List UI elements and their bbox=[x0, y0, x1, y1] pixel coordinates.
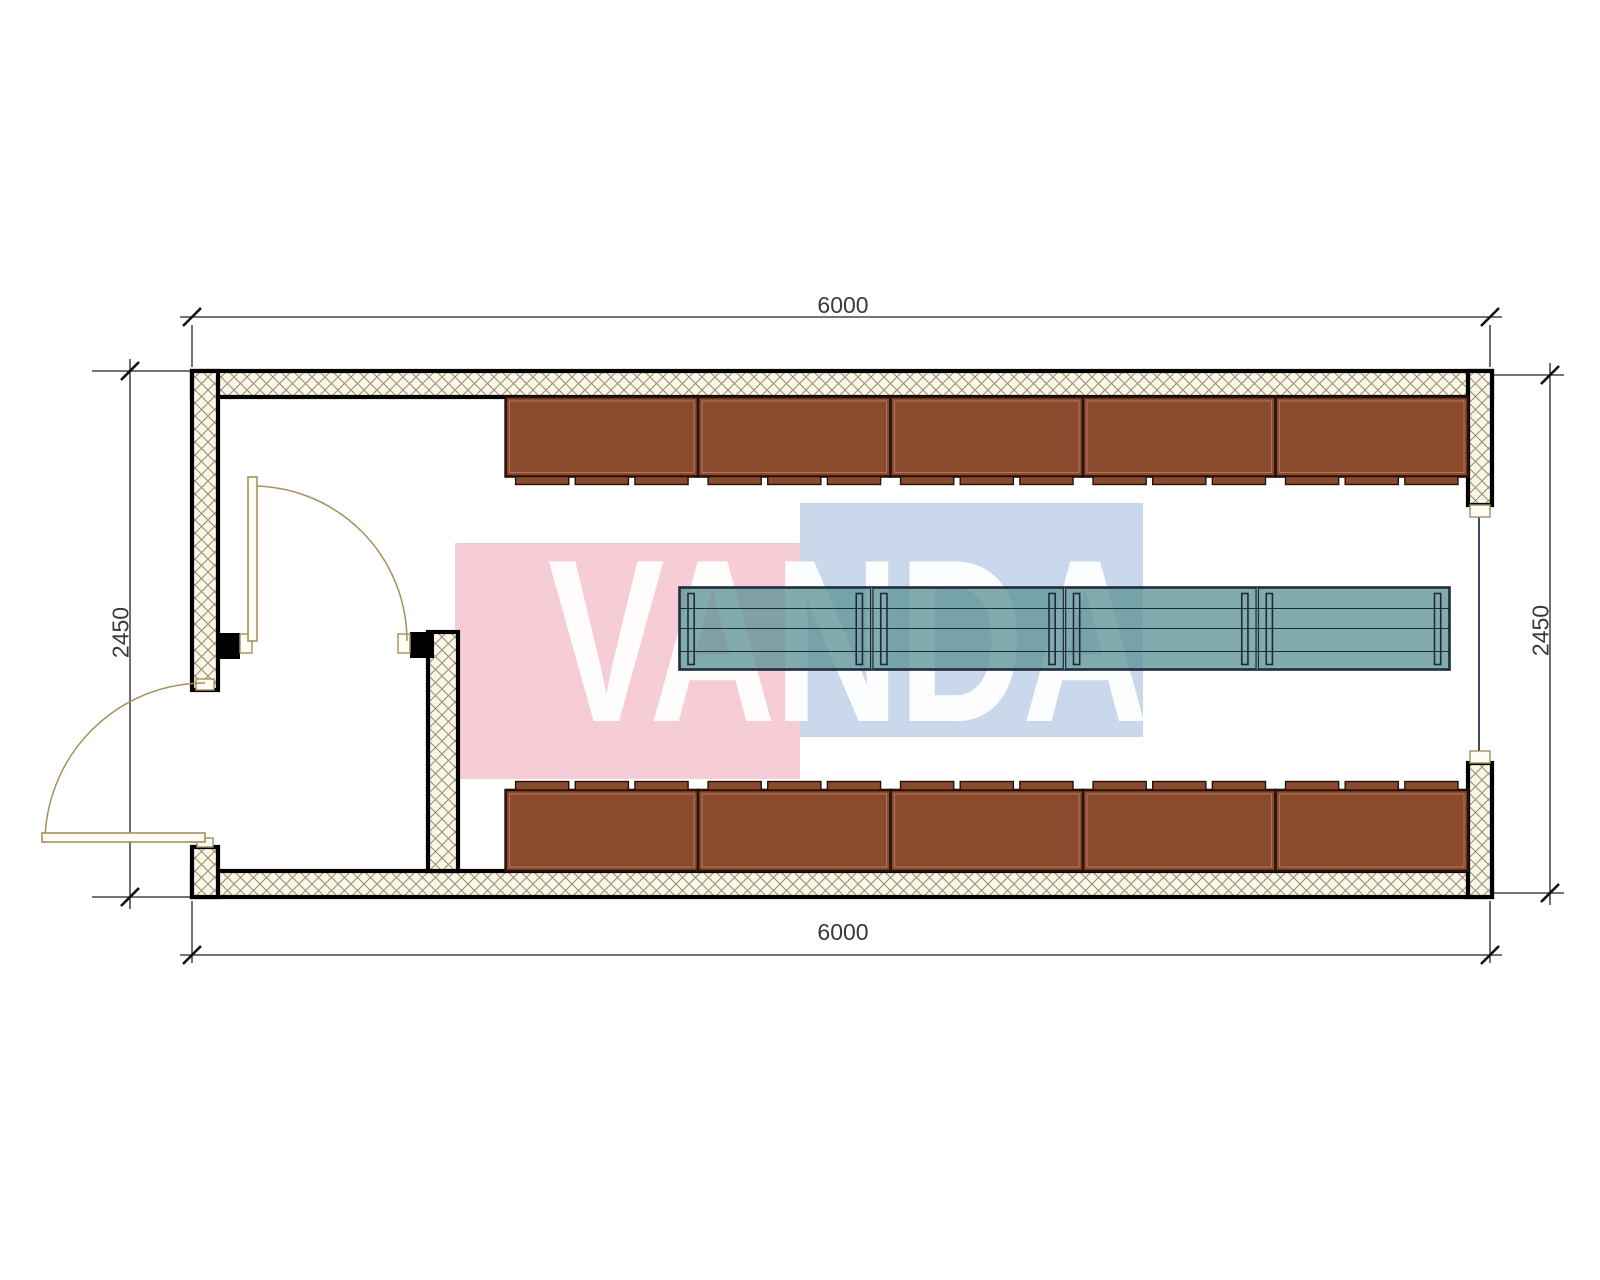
cabinet-door-tab bbox=[1020, 782, 1073, 791]
wall-bottom bbox=[192, 871, 1492, 897]
cabinet-door-tab bbox=[516, 477, 569, 485]
cabinet-body bbox=[1276, 790, 1468, 871]
cabinet-body bbox=[1083, 790, 1275, 871]
wall-left-upper bbox=[192, 371, 218, 690]
dimension-label-left: 2450 bbox=[108, 570, 133, 696]
wall-left-lower bbox=[192, 847, 218, 897]
cabinet-door-tab bbox=[1093, 782, 1146, 791]
dimension-label-bottom: 6000 bbox=[783, 919, 903, 946]
wardrobe-cabinet-bottom bbox=[1276, 782, 1468, 872]
floor-plan-svg bbox=[0, 0, 1600, 1280]
doors bbox=[42, 477, 407, 843]
cabinet-door-tab bbox=[768, 782, 821, 791]
cabinet-body bbox=[698, 397, 890, 477]
wall-right-lower-stub bbox=[1468, 763, 1492, 897]
cabinet-door-tab bbox=[1405, 477, 1458, 485]
wardrobe-cabinet-bottom bbox=[698, 782, 890, 872]
wardrobe-cabinet-bottom bbox=[891, 782, 1083, 872]
cabinet-door-tab bbox=[1093, 477, 1146, 485]
wardrobe-cabinets bbox=[506, 397, 1468, 871]
cabinet-door-tab bbox=[1345, 477, 1398, 485]
cabinet-door-tab bbox=[1345, 782, 1398, 791]
wardrobe-cabinet-top bbox=[1276, 397, 1468, 485]
wardrobe-cabinet-top bbox=[1083, 397, 1275, 485]
cabinet-door-tab bbox=[635, 782, 688, 791]
cabinet-door-tab bbox=[1212, 782, 1265, 791]
wardrobe-cabinet-top bbox=[698, 397, 890, 485]
cabinet-body bbox=[891, 790, 1083, 871]
cabinet-body bbox=[1083, 397, 1275, 477]
door-jamb-left bbox=[218, 633, 240, 659]
cabinet-body bbox=[891, 397, 1083, 477]
cabinet-body bbox=[1276, 397, 1468, 477]
cabinet-door-tab bbox=[708, 477, 761, 485]
cabinet-door-tab bbox=[960, 477, 1013, 485]
cabinet-door-tab bbox=[635, 477, 688, 485]
cabinet-door-tab bbox=[1212, 477, 1265, 485]
cabinet-door-tab bbox=[1286, 477, 1339, 485]
dimension-line-top bbox=[180, 317, 1502, 367]
cabinet-door-tab bbox=[1405, 782, 1458, 791]
wall-right-upper-stub bbox=[1468, 371, 1492, 505]
entrance-door-upper-jamb bbox=[196, 679, 214, 690]
cabinet-door-tab bbox=[827, 782, 880, 791]
wardrobe-cabinet-bottom bbox=[1083, 782, 1275, 872]
cabinet-door-tab bbox=[901, 782, 954, 791]
interior-door-right-jamb bbox=[398, 634, 410, 653]
door-jamb-right bbox=[410, 632, 434, 658]
dimension-label-top: 6000 bbox=[783, 292, 903, 319]
cabinet-door-tab bbox=[1286, 782, 1339, 791]
interior-door-swing-arc bbox=[252, 486, 407, 641]
entrance-door-swing-arc bbox=[45, 683, 205, 843]
cabinet-door-tab bbox=[768, 477, 821, 485]
cabinet-door-tab bbox=[827, 477, 880, 485]
cabinet-body bbox=[506, 397, 698, 477]
cabinet-door-tab bbox=[901, 477, 954, 485]
cabinet-body bbox=[506, 790, 698, 871]
right-upper-cap bbox=[1470, 505, 1490, 517]
cabinet-door-tab bbox=[1153, 782, 1206, 791]
right-lower-cap bbox=[1470, 751, 1490, 763]
cabinet-door-tab bbox=[516, 782, 569, 791]
cabinet-door-tab bbox=[575, 477, 628, 485]
cabinet-door-tab bbox=[960, 782, 1013, 791]
cabinet-body bbox=[698, 790, 890, 871]
floor-plan-drawing: VANDA bbox=[0, 0, 1600, 1280]
wardrobe-cabinet-top bbox=[891, 397, 1083, 485]
entrance-door-leaf bbox=[42, 833, 205, 842]
dimension-label-right: 2450 bbox=[1528, 568, 1553, 694]
wall-top bbox=[192, 371, 1492, 397]
cabinet-door-tab bbox=[1020, 477, 1073, 485]
interior-door-leaf bbox=[248, 477, 257, 641]
wardrobe-cabinet-top bbox=[506, 397, 698, 485]
wardrobe-cabinet-bottom bbox=[506, 782, 698, 872]
wall-partition bbox=[428, 632, 458, 871]
cabinet-door-tab bbox=[575, 782, 628, 791]
cabinet-door-tab bbox=[708, 782, 761, 791]
cabinet-door-tab bbox=[1153, 477, 1206, 485]
